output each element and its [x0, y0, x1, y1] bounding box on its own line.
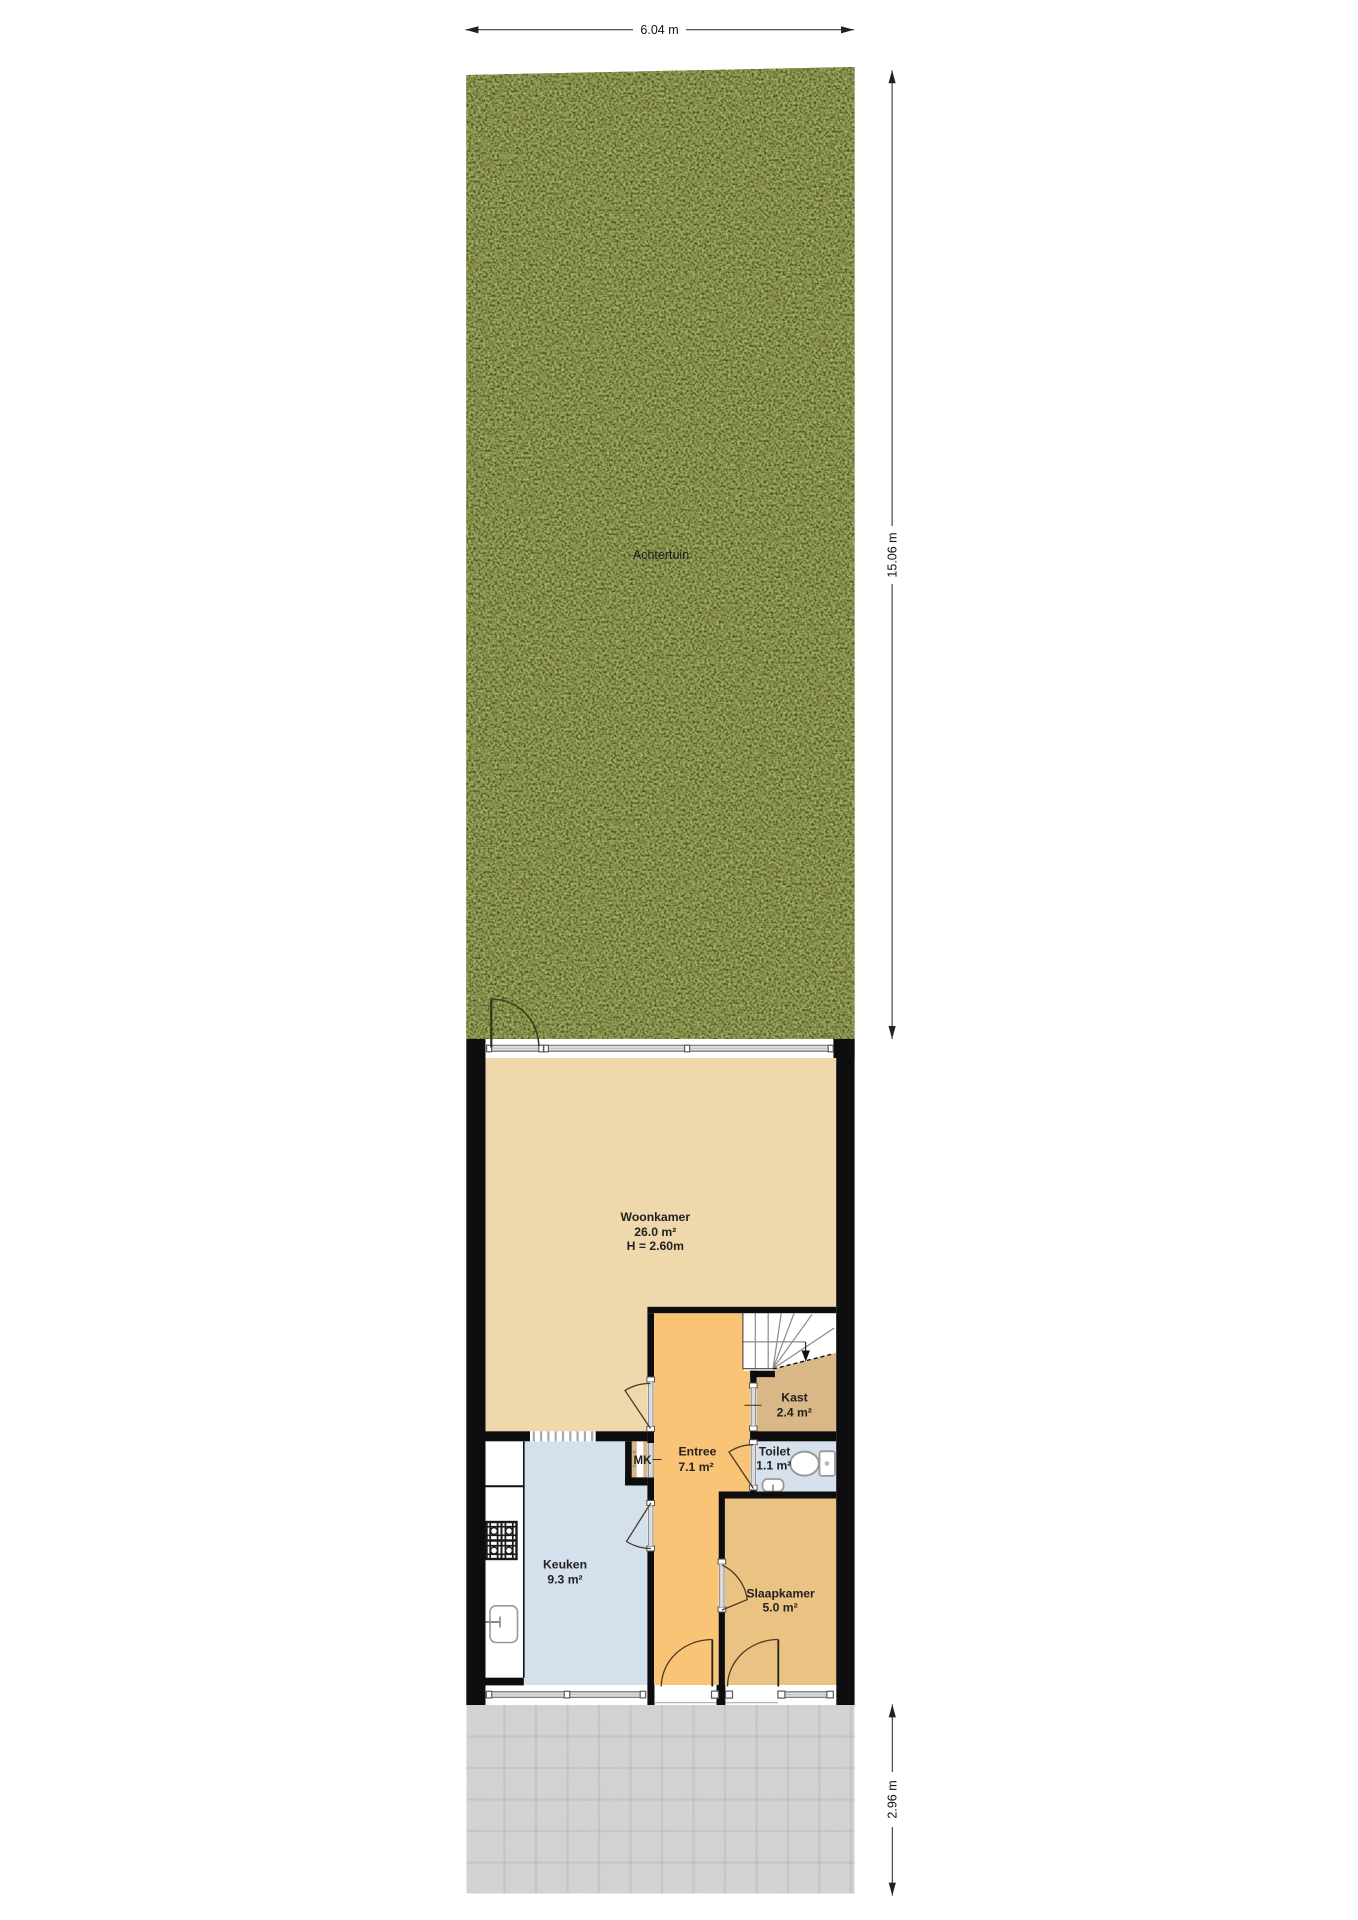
- svg-text:Slaapkamer: Slaapkamer: [746, 1587, 815, 1601]
- svg-text:26.0 m²: 26.0 m²: [634, 1225, 676, 1239]
- svg-text:MK: MK: [634, 1455, 653, 1467]
- svg-text:Entree: Entree: [679, 1445, 717, 1459]
- svg-text:2.96 m: 2.96 m: [886, 1780, 900, 1818]
- svg-text:Kast: Kast: [781, 1390, 807, 1404]
- svg-text:7.1 m²: 7.1 m²: [678, 1460, 713, 1474]
- svg-text:Toilet: Toilet: [759, 1445, 791, 1459]
- svg-text:9.3 m²: 9.3 m²: [547, 1573, 582, 1587]
- svg-text:Achtertuin: Achtertuin: [633, 548, 689, 562]
- svg-text:Keuken: Keuken: [543, 1557, 587, 1571]
- svg-text:6.04 m: 6.04 m: [640, 23, 678, 37]
- svg-text:Woonkamer: Woonkamer: [621, 1210, 691, 1224]
- svg-text:2.4 m²: 2.4 m²: [777, 1406, 812, 1420]
- svg-text:15.06 m: 15.06 m: [885, 532, 899, 577]
- svg-text:1.1 m²: 1.1 m²: [756, 1459, 791, 1473]
- svg-text:H = 2.60m: H = 2.60m: [627, 1239, 684, 1253]
- svg-text:5.0 m²: 5.0 m²: [762, 1600, 797, 1614]
